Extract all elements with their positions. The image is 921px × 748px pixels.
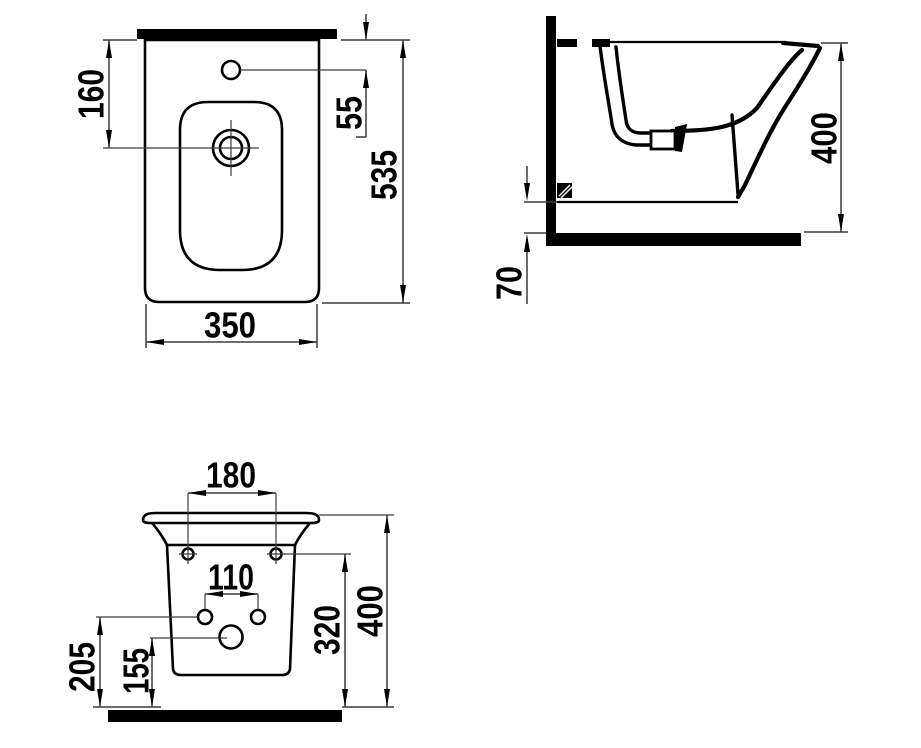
dim-label-535: 535 xyxy=(364,150,405,200)
dim-width-350: 350 xyxy=(146,304,317,348)
dim-label-155: 155 xyxy=(116,648,157,694)
arrow-up xyxy=(838,43,844,61)
neck-right xyxy=(295,523,310,545)
dim-label-400-front: 400 xyxy=(350,585,391,637)
dim-label-160: 160 xyxy=(71,69,112,119)
rim-plate xyxy=(143,513,319,523)
arrow-down xyxy=(342,689,348,707)
dim-drain-offset-160: 160 xyxy=(71,40,138,148)
dim-label-350: 350 xyxy=(204,305,256,346)
rim-section-left xyxy=(557,39,577,47)
arrow-down xyxy=(400,285,406,303)
drain-trap-box xyxy=(651,131,675,149)
overflow-channel-outer xyxy=(600,46,652,145)
wall-bar xyxy=(546,16,556,246)
dim-label-110: 110 xyxy=(208,557,254,598)
dim-label-205: 205 xyxy=(62,642,103,692)
arrow-down xyxy=(106,130,112,148)
fixing-bracket xyxy=(557,183,572,198)
dim-anchor-hole-height-205: 205 xyxy=(62,617,104,707)
front-view: 180 110 205 xyxy=(62,455,395,723)
arrow-up xyxy=(524,234,530,252)
side-view: 70 400 xyxy=(489,16,849,304)
wall-bar xyxy=(137,29,337,39)
technical-drawing-page: 160 55 535 350 xyxy=(0,0,921,748)
plan-view: 160 55 535 350 xyxy=(71,14,411,348)
overflow-channel-inner xyxy=(616,47,652,133)
arrow-left xyxy=(146,339,164,345)
bowl-inner-curve xyxy=(672,50,802,131)
drain-trap-right xyxy=(675,124,687,152)
neck-left xyxy=(152,523,167,545)
dim-label-55: 55 xyxy=(329,96,370,130)
arrow-down xyxy=(524,183,530,201)
dim-drain-hole-height-155: 155 xyxy=(116,638,157,707)
arrow-down xyxy=(363,22,369,40)
dim-label-320: 320 xyxy=(307,605,348,655)
bidet-installation-drawing: 160 55 535 350 xyxy=(0,0,921,748)
dim-label-70: 70 xyxy=(489,266,530,300)
arrow-right xyxy=(258,490,276,496)
floor-bar xyxy=(546,233,801,246)
arrow-up xyxy=(384,515,390,533)
dim-label-180: 180 xyxy=(206,455,256,496)
dim-wall-hole-spacing-180: 180 xyxy=(188,455,276,550)
dim-label-400-side: 400 xyxy=(804,112,845,164)
arrow-up xyxy=(342,554,348,572)
arrow-up xyxy=(106,40,112,58)
dim-rim-height-400: 400 xyxy=(804,43,849,232)
arrow-up xyxy=(363,70,369,88)
foot-inner-line xyxy=(732,115,738,194)
arrow-left xyxy=(188,490,206,496)
arrow-right xyxy=(299,339,317,345)
rim-section-right xyxy=(783,43,818,46)
floor-bar xyxy=(108,710,342,722)
arrow-up xyxy=(400,40,406,58)
arrow-up xyxy=(97,617,103,635)
arrow-down xyxy=(384,689,390,707)
dim-floor-clearance-70: 70 xyxy=(489,233,547,304)
arrow-down xyxy=(838,214,844,232)
